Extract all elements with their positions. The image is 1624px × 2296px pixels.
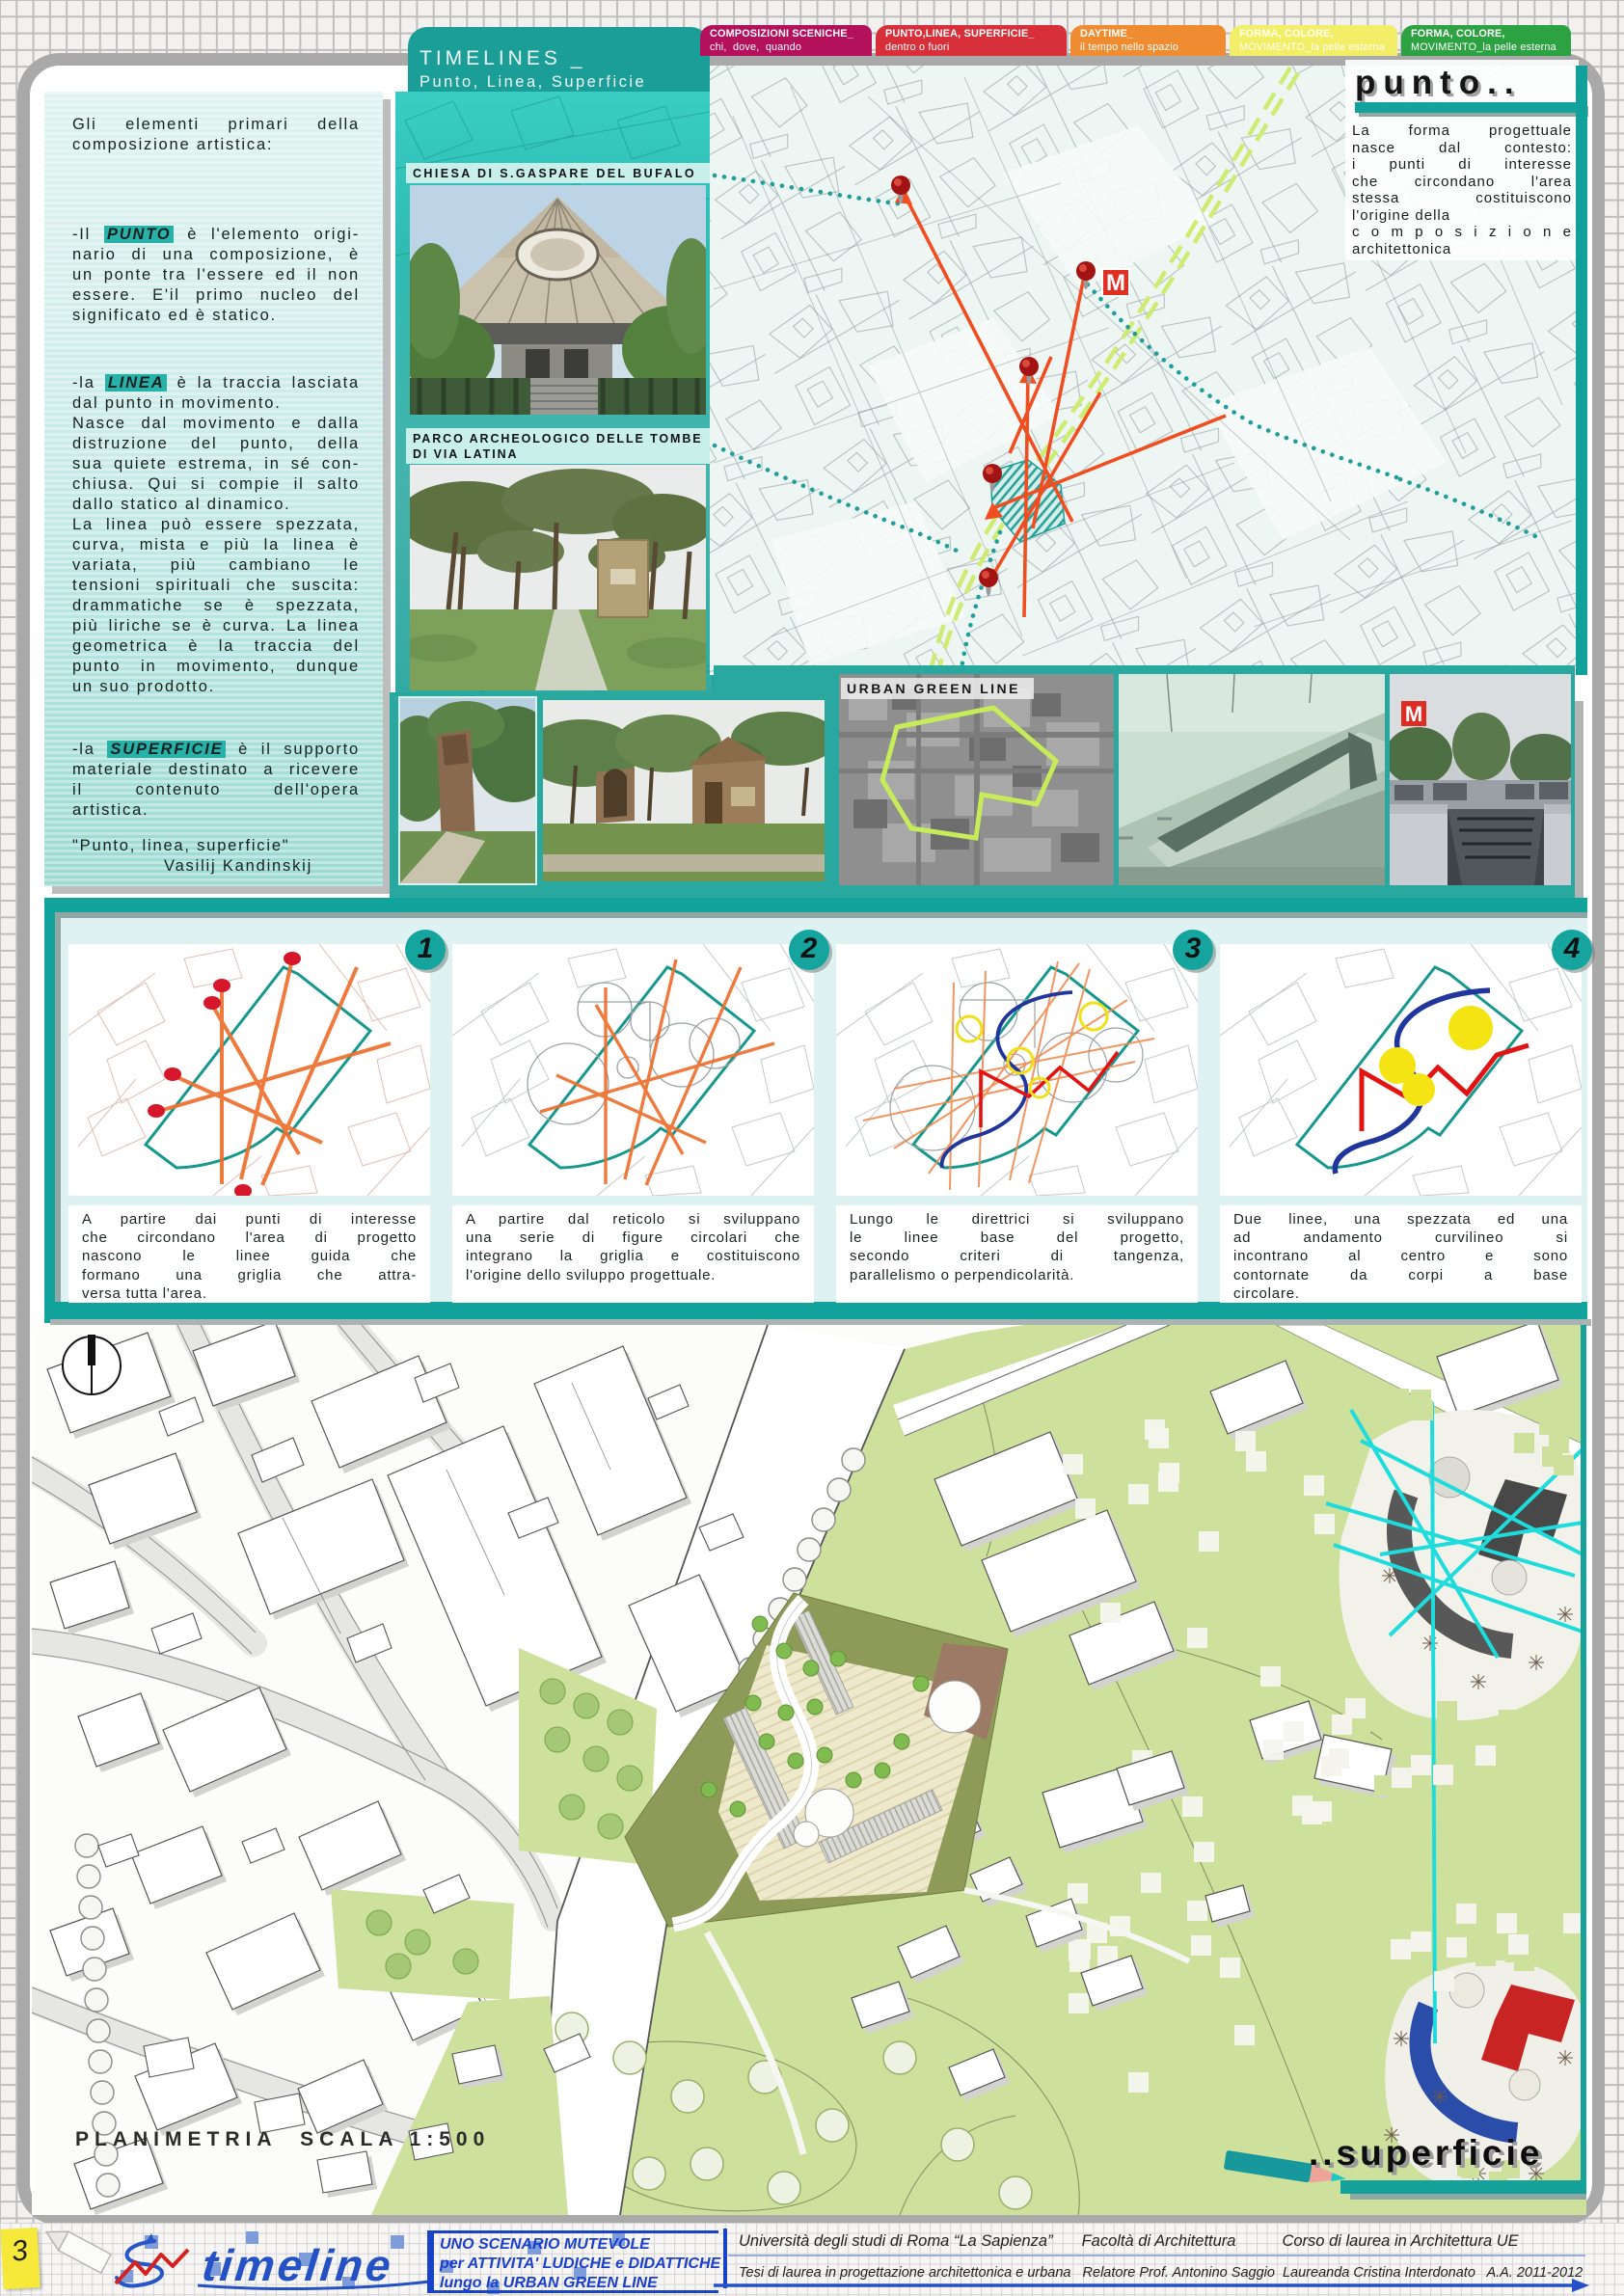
- svg-text:URBAN GREEN LINE: URBAN GREEN LINE: [847, 681, 1020, 696]
- svg-text:M: M: [1405, 702, 1422, 726]
- svg-text:M: M: [1106, 270, 1125, 296]
